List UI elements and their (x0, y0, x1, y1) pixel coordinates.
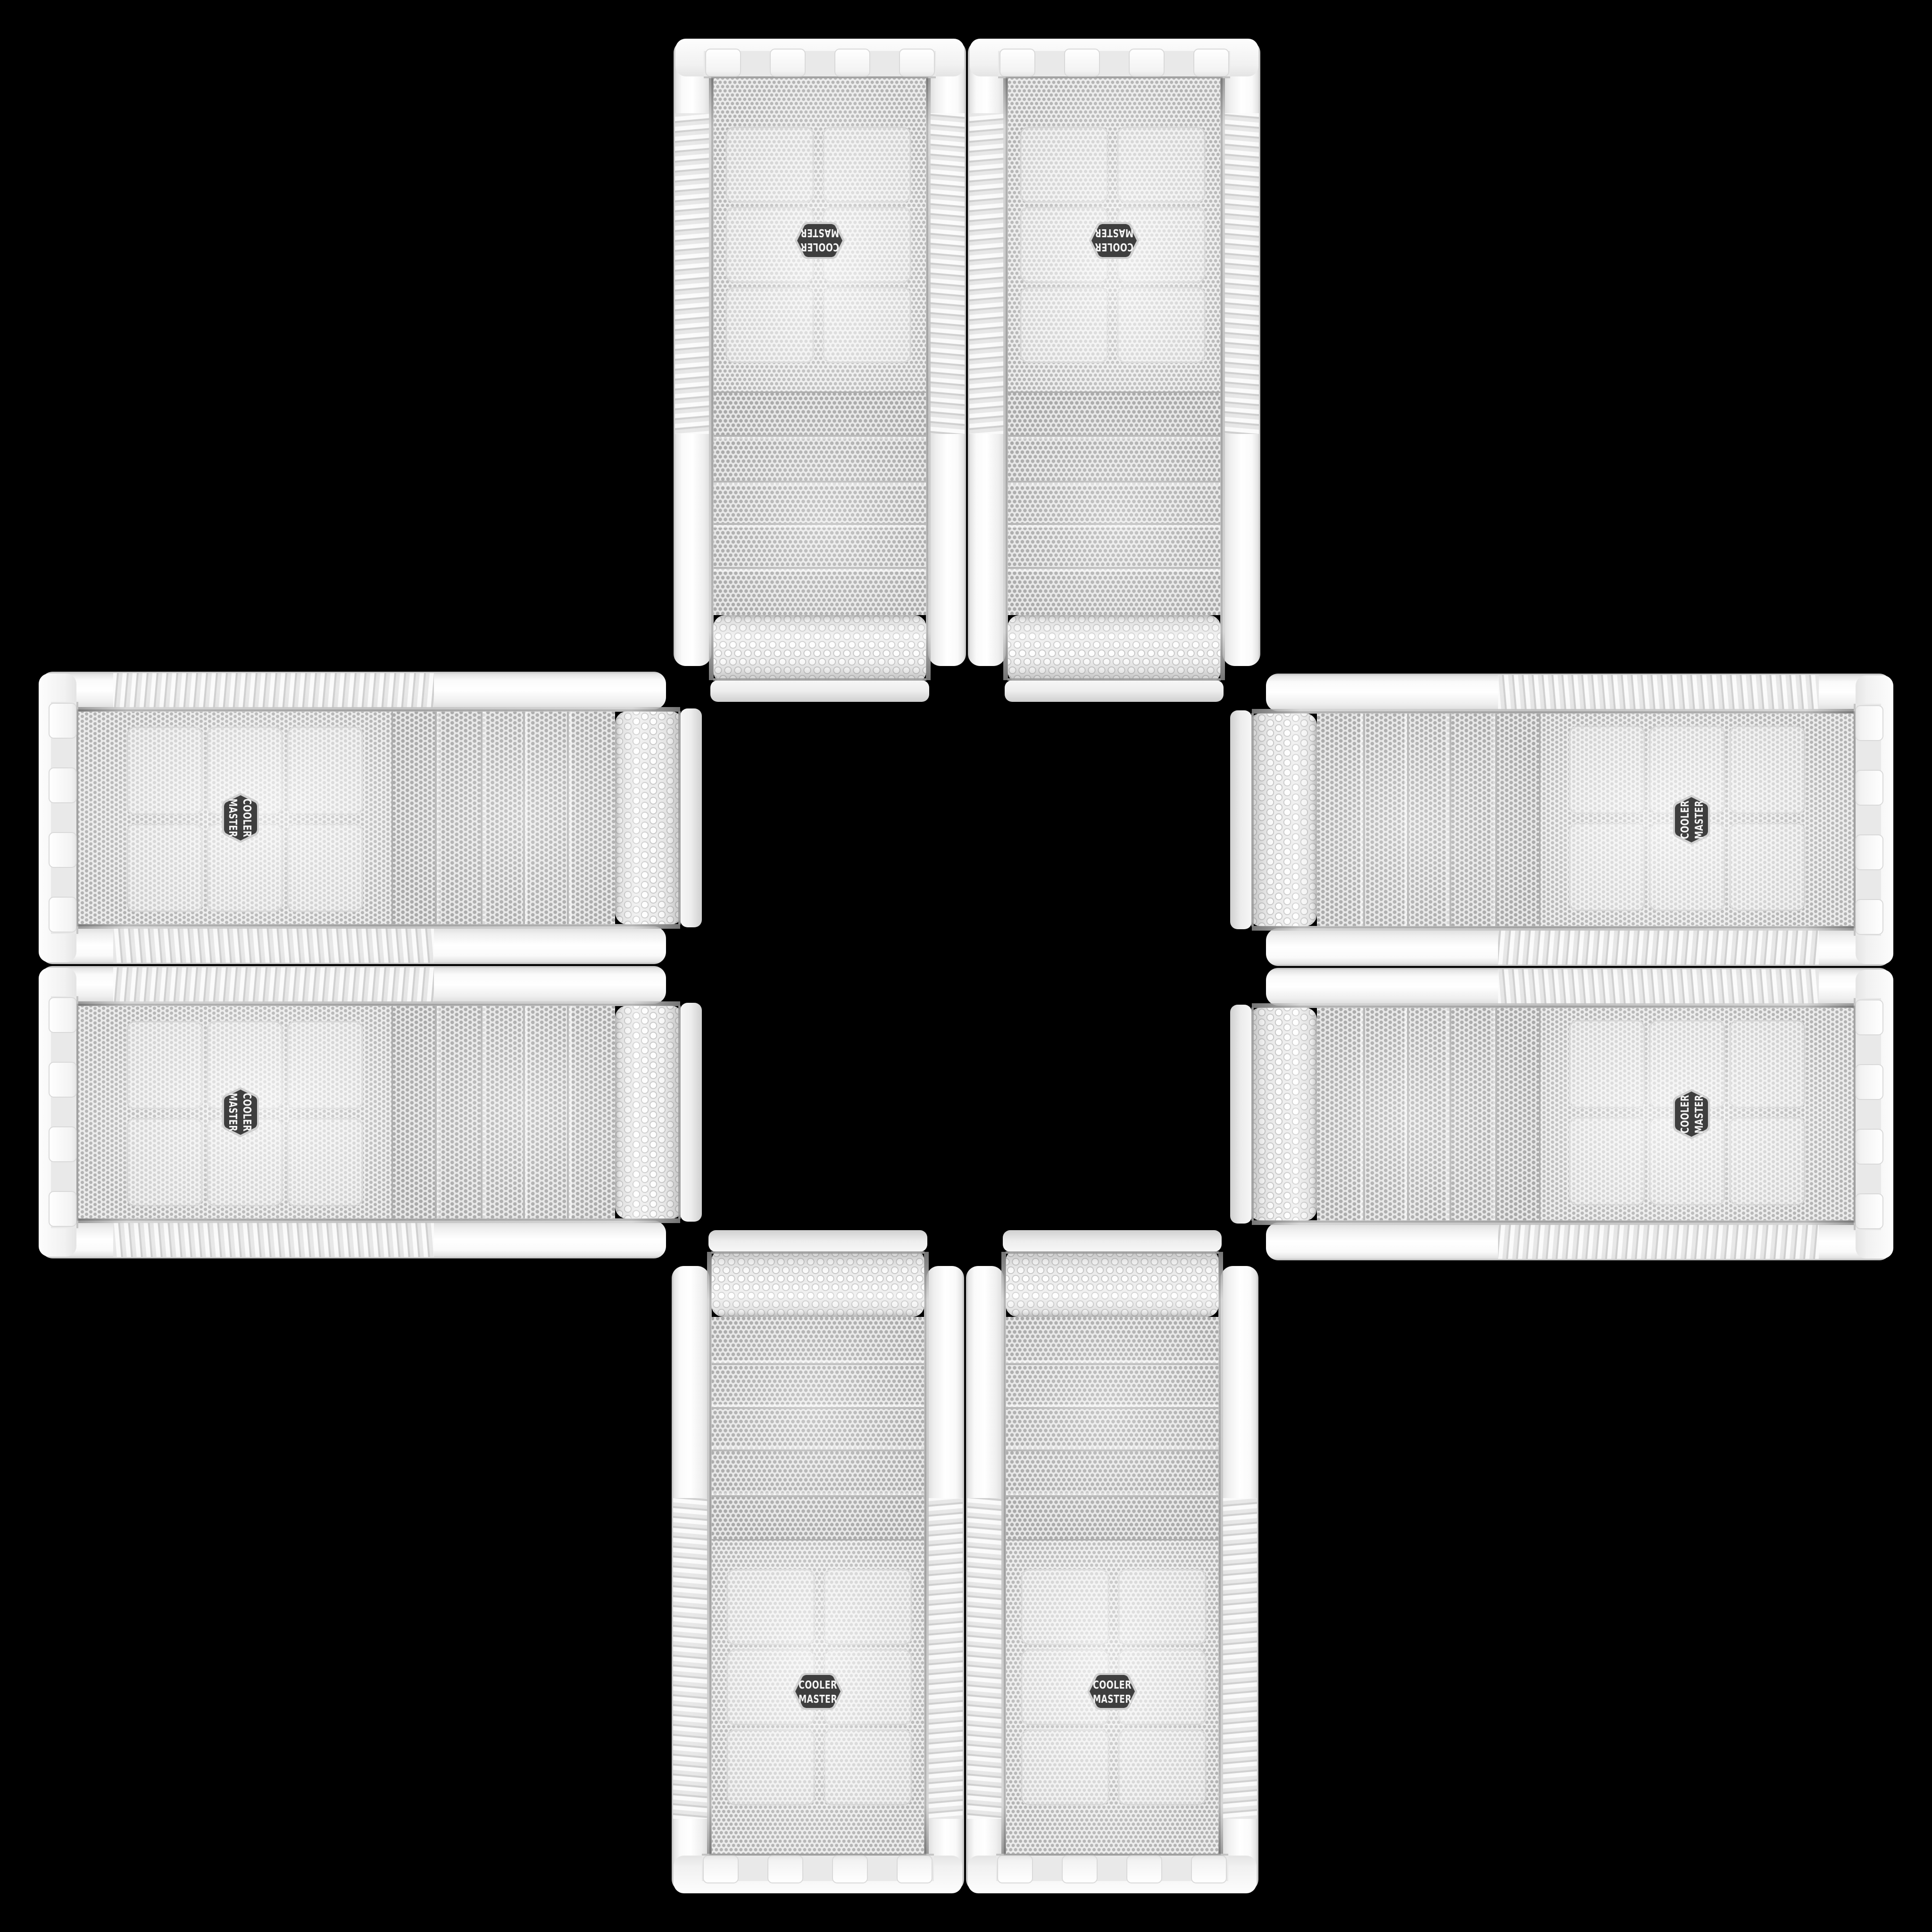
product-collage: COOLER MASTER (0, 0, 1932, 1932)
